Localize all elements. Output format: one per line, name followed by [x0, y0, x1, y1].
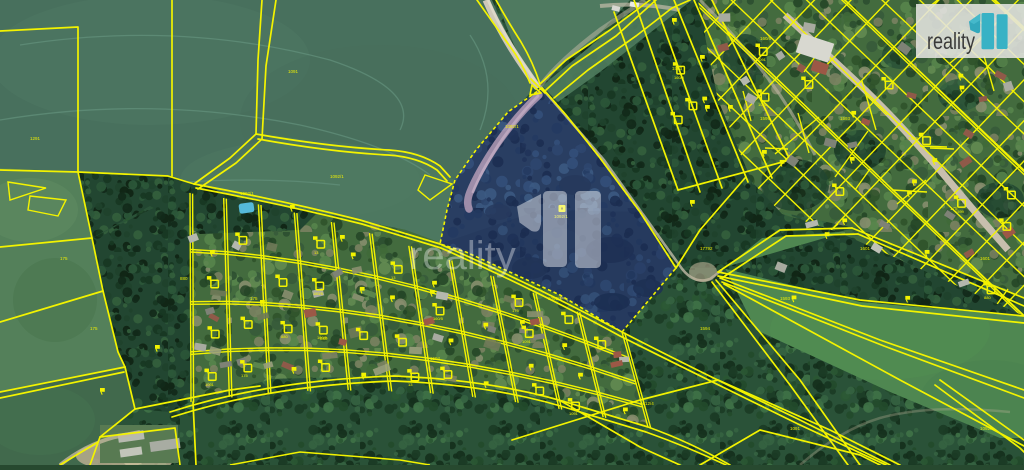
- svg-text:1091: 1091: [522, 339, 532, 344]
- svg-text:880: 880: [281, 334, 288, 339]
- svg-text:1612/4: 1612/4: [640, 401, 654, 406]
- svg-text:160/5: 160/5: [760, 36, 772, 41]
- svg-text:175: 175: [250, 296, 258, 301]
- svg-text:1291: 1291: [30, 136, 41, 141]
- svg-text:1594: 1594: [430, 356, 441, 361]
- svg-text:1091: 1091: [569, 411, 579, 416]
- svg-text:175: 175: [512, 308, 519, 313]
- svg-text:reality: reality: [409, 234, 516, 278]
- svg-text:1092/1: 1092/1: [330, 174, 344, 179]
- svg-text:880: 880: [320, 336, 328, 341]
- svg-text:1599: 1599: [908, 136, 919, 141]
- svg-text:1091: 1091: [288, 69, 299, 74]
- svg-text:175: 175: [950, 206, 958, 211]
- svg-text:1593: 1593: [840, 116, 851, 121]
- svg-text:1092/1: 1092/1: [240, 191, 254, 196]
- svg-text:160/5: 160/5: [313, 291, 324, 296]
- svg-text:1092/1: 1092/1: [548, 296, 562, 301]
- svg-text:13: 13: [408, 382, 413, 387]
- svg-text:1601: 1601: [980, 256, 991, 261]
- svg-text:175: 175: [90, 326, 98, 331]
- svg-text:1594: 1594: [700, 326, 711, 331]
- svg-text:1092/1: 1092/1: [505, 124, 519, 129]
- svg-text:1601: 1601: [860, 246, 871, 251]
- svg-text:160/5: 160/5: [433, 316, 444, 321]
- svg-text:1091: 1091: [790, 426, 801, 431]
- svg-text:1092/1: 1092/1: [980, 426, 994, 431]
- svg-text:880: 880: [984, 295, 991, 300]
- svg-text:13: 13: [314, 250, 319, 255]
- svg-text:17792: 17792: [700, 246, 713, 251]
- svg-text:1593: 1593: [672, 66, 683, 71]
- svg-text:1599: 1599: [760, 116, 771, 121]
- svg-text:13: 13: [391, 275, 396, 280]
- svg-text:1091: 1091: [758, 102, 768, 107]
- svg-text:880: 880: [180, 276, 188, 281]
- svg-text:175: 175: [241, 373, 248, 378]
- svg-text:1091: 1091: [205, 382, 215, 387]
- svg-text:160/5: 160/5: [674, 75, 685, 80]
- svg-text:reality: reality: [927, 28, 975, 54]
- svg-text:1593: 1593: [780, 296, 791, 301]
- svg-text:175: 175: [60, 256, 68, 261]
- svg-text:1091: 1091: [757, 57, 767, 62]
